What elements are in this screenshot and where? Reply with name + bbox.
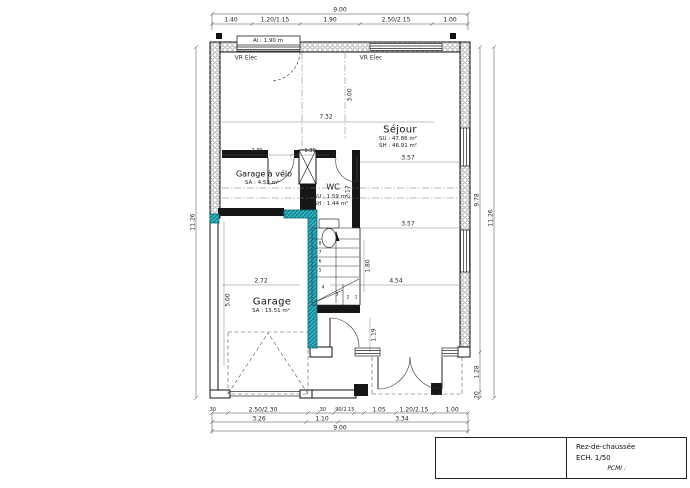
stair-step-4: 4 [322,286,325,291]
dimension-lines [194,12,496,434]
dim-left-total: 11.26 [190,213,197,230]
dim-wc-height: 2.17 [345,185,352,198]
dim-garage-depth: 5.00 [225,293,232,306]
vr-elec-right-label: VR Elec [360,55,383,62]
exterior-walls [210,42,470,398]
dim-living-width: 7.32 [319,114,332,121]
dim-bottom-r1-6: 1.20/2.15 [400,407,429,414]
dim-bottom-r1-3: .30 [318,407,326,413]
room-garage-sa: SA : 15.51 m² [252,308,290,314]
dim-right-bottom: .20 [474,391,481,401]
dim-bottom-r1-4: .90/2.15 [334,407,355,413]
stair-step-1: 1 [355,296,358,301]
dim-right-lower2: 3.57 [401,221,414,228]
dim-top-seg-3: 1.90 [323,17,336,24]
floor-plan-page: 9.00 1.40 1.20/1.15 1.90 2.50/2.15 1.00 … [0,0,690,488]
dim-sejour-width: 4.54 [389,278,402,285]
dim-top-total: 9.00 [333,7,346,14]
dim-right-inner: 9.78 [474,193,481,206]
room-sejour-su: SU : 47.86 m² [379,136,417,142]
interior-dimension-lines [222,122,462,366]
dim-bottom-total: 9.00 [333,425,346,432]
room-garage-name: Garage [253,297,291,308]
dim-entry-height: 3.00 [347,88,354,101]
dim-top-seg-1: 1.40 [224,17,237,24]
dim-wc-width: 1.31 [304,148,315,154]
vr-elec-left-label: VR Elec [235,55,258,62]
dim-bottom-r1-5: 1.05 [372,407,385,414]
dim-bottom-r2-1: 3.26 [252,416,265,423]
dim-right-outer: 11.26 [488,209,495,226]
dim-velo-width: 2.39 [251,148,262,154]
room-wc-sh: SH : 1.44 m² [314,201,349,207]
garage-door-symbol [228,332,308,394]
title-block-scale: ECH. 1/50 [576,454,611,462]
stair-step-3: 3 [336,293,339,298]
stair-step-6: 6 [319,260,322,265]
dim-door-height: 1.19 [371,328,378,341]
stair-step-8: 8 [319,242,322,247]
title-block: Rez-de-chaussée ECH. 1/50 PCMI : [435,437,687,479]
stair-step-5: 5 [319,269,322,274]
dim-bottom-r2-2: 1.10 [315,416,328,423]
dim-bottom-r2-3: 3.34 [395,416,408,423]
room-sejour-sh: SH : 46.91 m² [379,143,417,149]
dim-bottom-r1-7: 1.00 [445,407,458,414]
window-sill-label: Al : 1.90 m [253,38,283,44]
stair-step-2: 2 [347,296,350,301]
dim-right-upper: 3.57 [401,155,414,162]
room-garage-velo-sa: SA : 4.53 m² [245,180,279,186]
dim-bottom-r1-1: .30 [208,407,216,413]
dim-stair-height: 1.80 [365,259,372,272]
title-block-floor: Rez-de-chaussée [576,443,635,451]
dim-right-lower: 1.28 [474,365,481,378]
floor-plan-linework [0,0,690,488]
room-garage-velo-name: Garage à vélo [236,170,292,179]
dim-bottom-r1-2: 2.50/2.30 [249,407,278,414]
room-sejour-name: Séjour [383,125,417,136]
dim-garage-width: 2.72 [254,278,267,285]
dim-top-seg-4: 2.50/2.15 [382,17,411,24]
dim-top-seg-5: 1.00 [443,17,456,24]
room-wc-name: WC [326,183,340,192]
room-wc-su: SU : 1.59 m² [314,194,348,200]
title-block-divider [566,438,567,478]
stair-step-7: 7 [319,251,322,256]
dim-top-seg-2: 1.20/1.15 [261,17,290,24]
title-block-pcmi: PCMI : [607,465,626,472]
